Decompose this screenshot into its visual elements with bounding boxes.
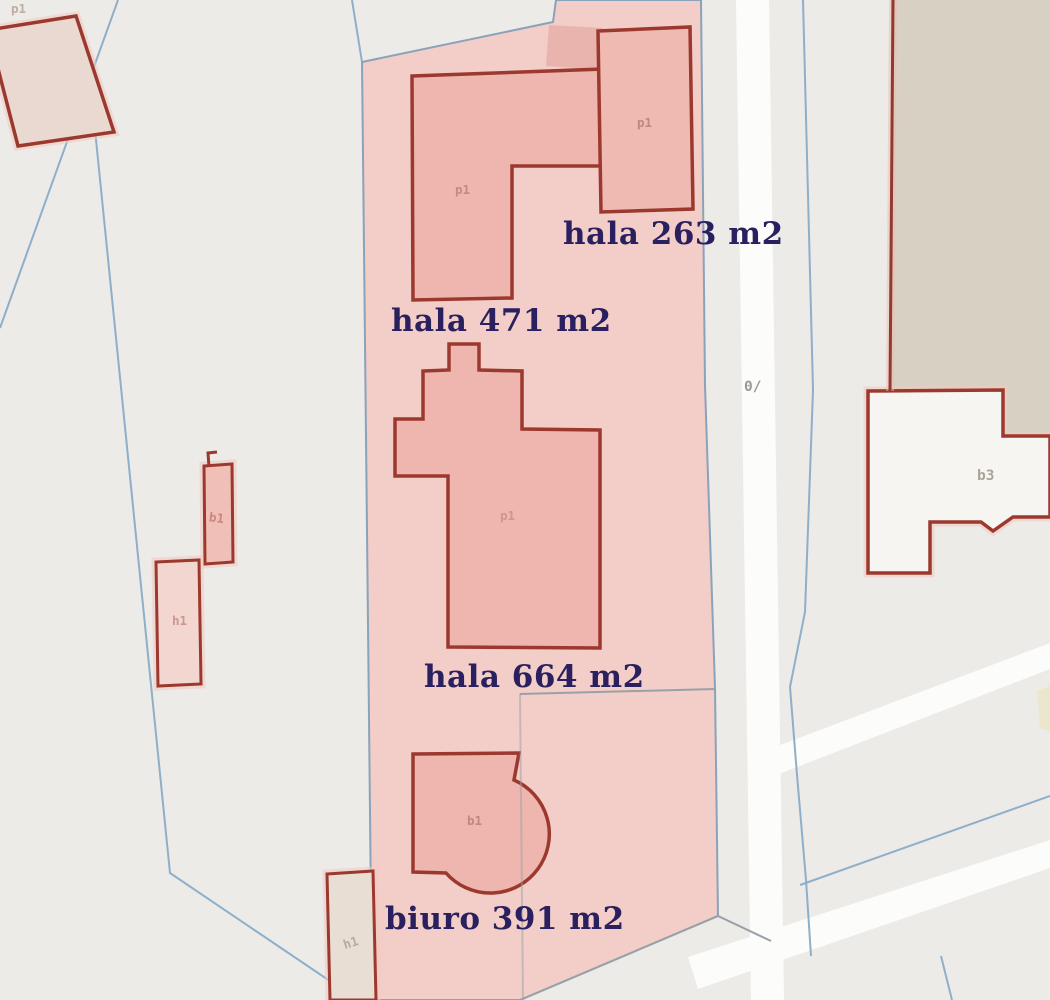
- code-p1-hala664: p1: [500, 508, 515, 523]
- road-marker: 0/: [744, 379, 761, 395]
- label-hala-263: hala 263 m2: [563, 216, 784, 252]
- code-b1-biuro: b1: [467, 813, 482, 828]
- parcel-area-beige: [891, 0, 1050, 436]
- code-b3: b3: [977, 468, 994, 484]
- label-hala-471: hala 471 m2: [391, 303, 612, 339]
- code-p1-hala263: p1: [637, 115, 652, 130]
- building-shadow-overlap: [546, 25, 603, 70]
- code-p1-hala471: p1: [455, 182, 470, 197]
- cadastral-map: p1 p1 p1 p1 b1 b1 h1 h1 b3 0/ hala 263 m…: [0, 0, 1050, 1000]
- label-biuro-391: biuro 391 m2: [385, 901, 625, 937]
- code-h1-left: h1: [172, 613, 187, 628]
- code-p1-topleft: p1: [11, 1, 26, 16]
- code-b1-small: b1: [208, 509, 225, 526]
- label-hala-664: hala 664 m2: [424, 659, 645, 695]
